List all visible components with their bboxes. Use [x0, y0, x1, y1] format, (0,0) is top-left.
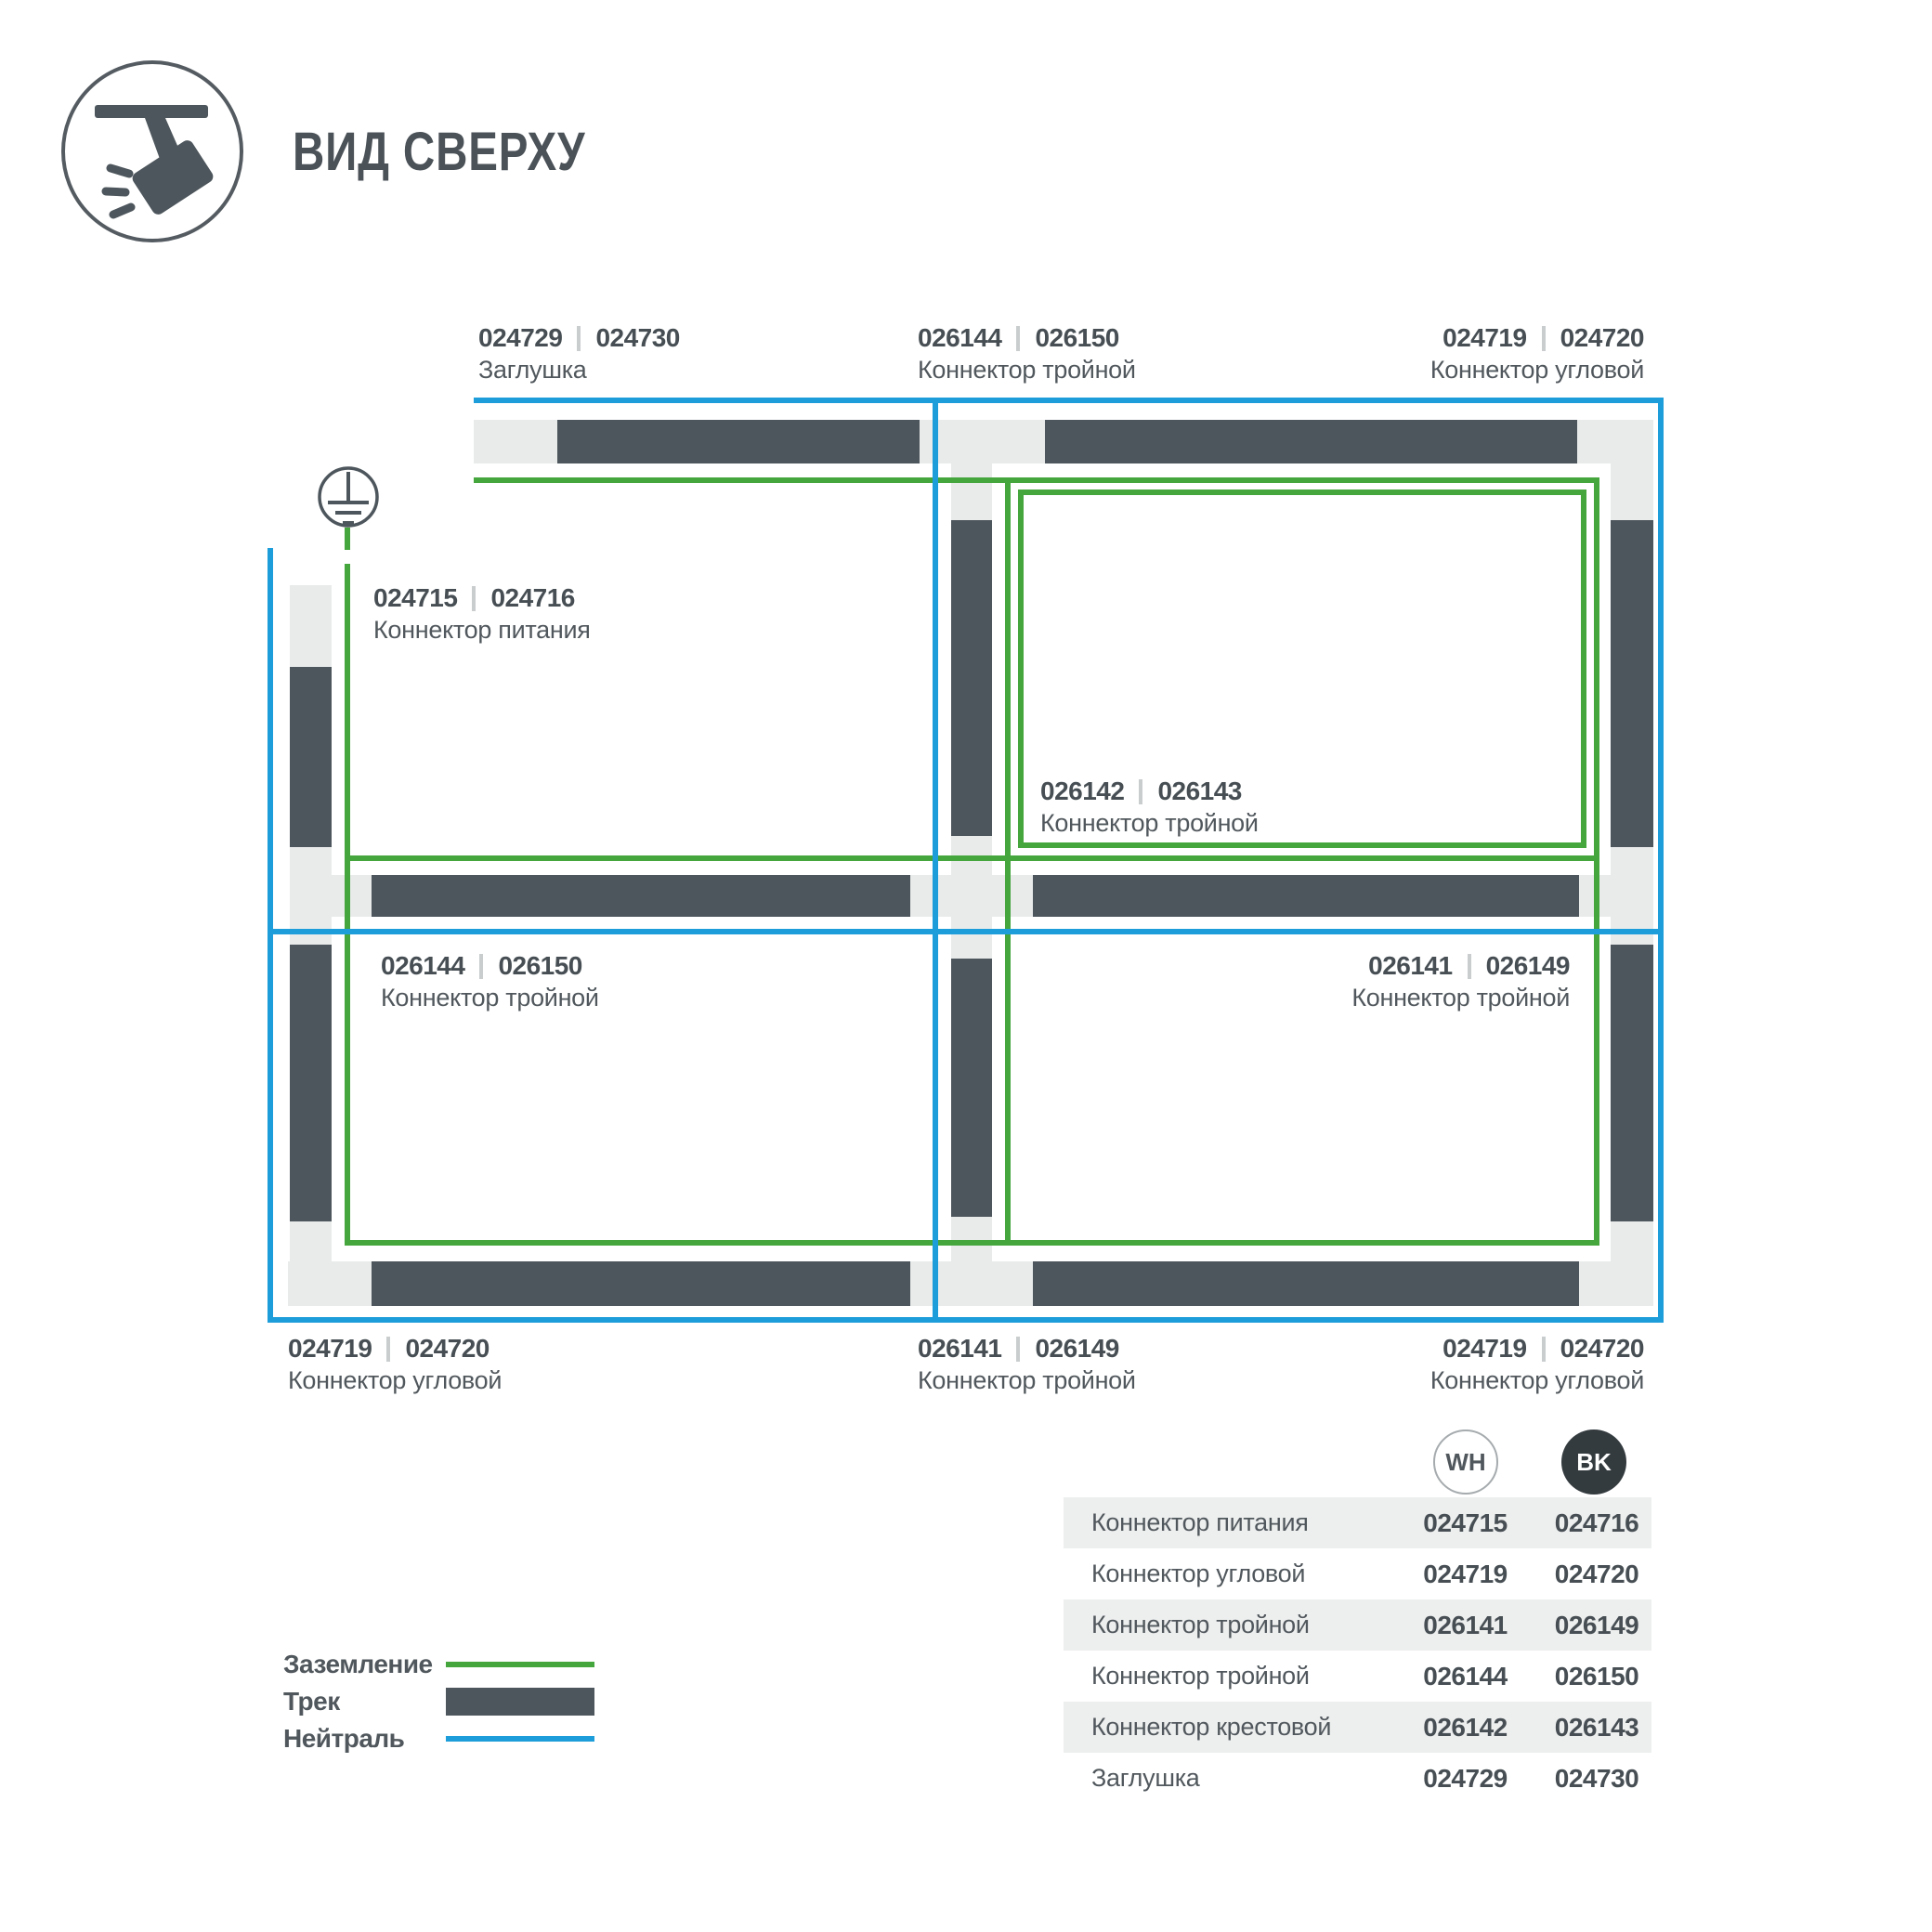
part-numbers: 026144026150	[381, 953, 599, 979]
label-corner-bottom-right: 024719024720 Коннектор угловой	[1430, 1336, 1644, 1393]
label-divider	[1542, 1337, 1546, 1362]
wh-number-cell: 024719	[1389, 1560, 1542, 1589]
part-name: Коннектор тройной	[918, 1368, 1136, 1393]
part-number-wh: 024729	[478, 325, 562, 351]
part-number-bk: 024720	[405, 1336, 489, 1362]
track-segment	[372, 1261, 910, 1306]
wh-number-cell: 024715	[1389, 1508, 1542, 1538]
label-power-connector: 024715024716 Коннектор питания	[373, 585, 591, 643]
part-numbers: 026141026149	[1351, 953, 1570, 979]
label-divider	[1468, 954, 1471, 979]
part-name-cell: Заглушка	[1064, 1764, 1389, 1793]
wh-number-cell: 026141	[1389, 1611, 1542, 1640]
track-segment	[1045, 420, 1577, 463]
label-divider	[1542, 326, 1546, 351]
part-numbers: 024719024720	[1430, 1336, 1644, 1362]
table-row: Коннектор угловой 024719 024720	[1064, 1548, 1651, 1599]
bk-number-cell: 026150	[1542, 1662, 1651, 1691]
label-tee-connector-top: 026144026150 Коннектор тройной	[918, 325, 1136, 383]
legend-item-track: Трек	[283, 1683, 599, 1720]
track-segment	[1033, 1261, 1579, 1306]
label-divider	[577, 326, 581, 351]
track-segment	[372, 875, 910, 917]
label-divider	[386, 1337, 390, 1362]
label-divider	[479, 954, 483, 979]
wh-number-cell: 026144	[1389, 1662, 1542, 1691]
label-end-cap-top: 024729024730 Заглушка	[478, 325, 680, 383]
track-segment	[1611, 945, 1653, 1221]
table-row: Коннектор тройной 026141 026149	[1064, 1599, 1651, 1651]
part-numbers: 024719024720	[288, 1336, 502, 1362]
table-row: Коннектор питания 024715 024716	[1064, 1497, 1651, 1548]
track-segment	[1611, 520, 1653, 847]
part-number-bk: 026150	[1035, 325, 1118, 351]
table-row: Коннектор тройной 026144 026150	[1064, 1651, 1651, 1702]
part-number-bk: 024720	[1560, 1336, 1644, 1362]
page: { "header": { "title": "ВИД СВЕРХУ" }, "…	[0, 0, 1932, 1932]
color-badge-black: BK	[1561, 1429, 1626, 1495]
part-number-bk: 026149	[1035, 1336, 1118, 1362]
part-name-cell: Коннектор питания	[1064, 1508, 1389, 1537]
ground-line-swatch	[446, 1662, 594, 1667]
part-number-wh: 024719	[1442, 1336, 1526, 1362]
track-segment	[557, 420, 920, 463]
label-corner-bottom-left: 024719024720 Коннектор угловой	[288, 1336, 502, 1393]
label-tee-connector-mid-right: 026141026149 Коннектор тройной	[1351, 953, 1570, 1011]
part-name-cell: Коннектор тройной	[1064, 1611, 1389, 1639]
table-row: Заглушка 024729 024730	[1064, 1753, 1651, 1804]
part-name: Коннектор питания	[373, 618, 591, 643]
bk-number-cell: 026143	[1542, 1713, 1651, 1743]
part-name: Коннектор тройной	[381, 986, 599, 1011]
part-number-wh: 026144	[381, 953, 464, 979]
part-name-cell: Коннектор угловой	[1064, 1560, 1389, 1588]
part-numbers: 024729024730	[478, 325, 680, 351]
part-number-wh: 024715	[373, 585, 457, 611]
part-numbers: 026144026150	[918, 325, 1136, 351]
part-name-cell: Коннектор тройной	[1064, 1662, 1389, 1690]
part-number-wh: 024719	[1442, 325, 1526, 351]
part-number-wh: 026142	[1040, 778, 1124, 804]
legend-item-neutral: Нейтраль	[283, 1720, 599, 1757]
table-row: Коннектор крестовой 026142 026143	[1064, 1702, 1651, 1753]
legend-label: Заземление	[283, 1650, 446, 1679]
part-name-cell: Коннектор крестовой	[1064, 1713, 1389, 1742]
bk-number-cell: 024720	[1542, 1560, 1651, 1589]
label-tee-connector-mid-left: 026144026150 Коннектор тройной	[381, 953, 599, 1011]
part-name: Коннектор тройной	[1040, 811, 1259, 836]
part-number-bk: 026150	[498, 953, 581, 979]
part-numbers: 026141026149	[918, 1336, 1136, 1362]
part-number-bk: 026143	[1157, 778, 1241, 804]
part-number-bk: 024716	[490, 585, 574, 611]
label-divider	[1139, 779, 1142, 804]
track-segment	[290, 667, 332, 847]
wh-number-cell: 026142	[1389, 1713, 1542, 1743]
legend: Заземление Трек Нейтраль	[283, 1646, 599, 1757]
part-number-bk: 024730	[595, 325, 679, 351]
label-divider	[472, 586, 476, 611]
legend-label: Нейтраль	[283, 1724, 446, 1754]
part-numbers: 024719024720	[1430, 325, 1644, 351]
part-name: Коннектор тройной	[918, 358, 1136, 383]
legend-label: Трек	[283, 1687, 446, 1717]
wh-number-cell: 024729	[1389, 1764, 1542, 1794]
part-name: Коннектор угловой	[1430, 1368, 1644, 1393]
part-name: Заглушка	[478, 358, 680, 383]
track-segment	[951, 959, 992, 1217]
legend-item-ground: Заземление	[283, 1646, 599, 1683]
part-number-wh: 026144	[918, 325, 1001, 351]
part-name: Коннектор угловой	[288, 1368, 502, 1393]
part-number-wh: 024719	[288, 1336, 372, 1362]
part-numbers: 026142026143	[1040, 778, 1259, 804]
parts-table: Коннектор питания 024715 024716 Коннекто…	[1064, 1497, 1651, 1804]
bk-number-cell: 024716	[1542, 1508, 1651, 1538]
part-name: Коннектор угловой	[1430, 358, 1644, 383]
track-segment	[1033, 875, 1579, 917]
color-badge-white: WH	[1433, 1429, 1498, 1495]
ground-symbol-icon	[320, 468, 377, 526]
track-segment	[951, 520, 992, 836]
part-number-bk: 026149	[1486, 953, 1570, 979]
label-cross-connector: 026142026143 Коннектор тройной	[1040, 778, 1259, 836]
part-number-wh: 026141	[1368, 953, 1452, 979]
bk-number-cell: 026149	[1542, 1611, 1651, 1640]
label-tee-connector-bottom: 026141026149 Коннектор тройной	[918, 1336, 1136, 1393]
neutral-line-swatch	[446, 1736, 594, 1742]
part-name: Коннектор тройной	[1351, 986, 1570, 1011]
part-number-wh: 026141	[918, 1336, 1001, 1362]
track-bar-swatch	[446, 1688, 594, 1716]
part-numbers: 024715024716	[373, 585, 591, 611]
bk-number-cell: 024730	[1542, 1764, 1651, 1794]
part-number-bk: 024720	[1560, 325, 1644, 351]
track-segment	[290, 945, 332, 1221]
label-divider	[1016, 1337, 1020, 1362]
label-corner-top-right: 024719024720 Коннектор угловой	[1430, 325, 1644, 383]
label-divider	[1016, 326, 1020, 351]
